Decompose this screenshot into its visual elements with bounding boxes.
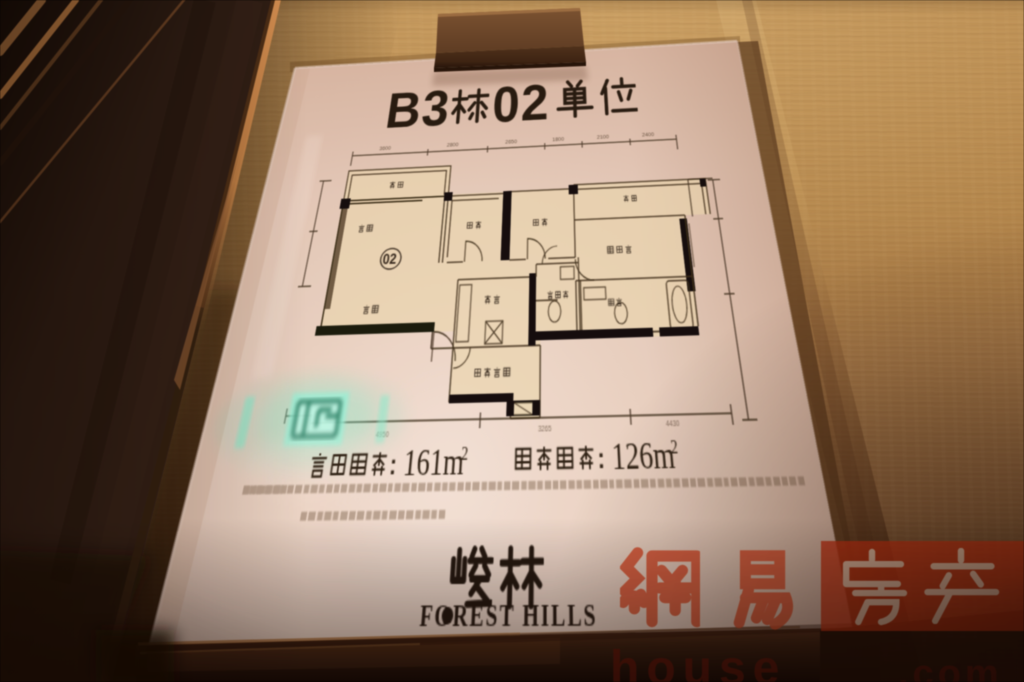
svg-text:.com: .com	[898, 653, 1003, 682]
svg-text:house: house	[610, 642, 786, 682]
